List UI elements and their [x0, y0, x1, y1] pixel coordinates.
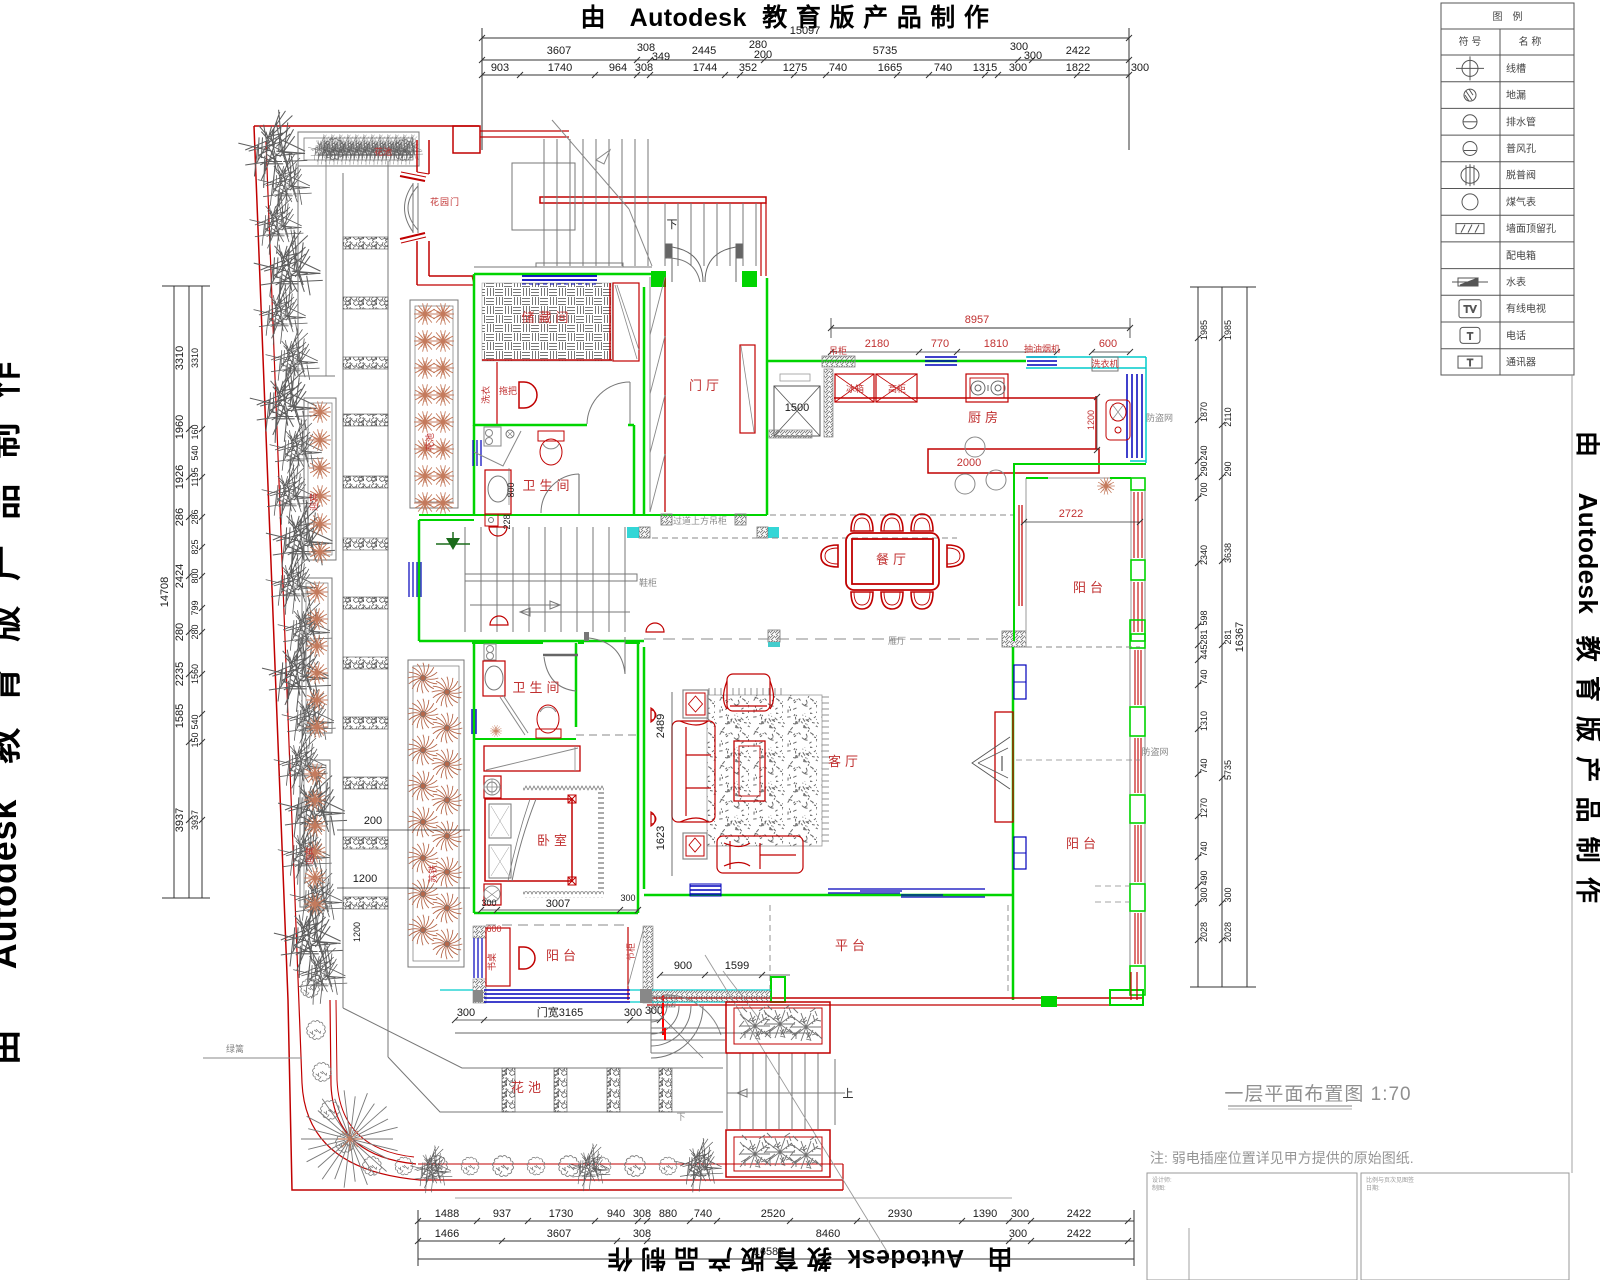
svg-text:1960: 1960 [174, 415, 186, 439]
svg-text:3607: 3607 [547, 1228, 571, 1240]
svg-text:2422: 2422 [1067, 1228, 1091, 1240]
svg-text:2110: 2110 [1223, 407, 1233, 426]
svg-text:下: 下 [667, 219, 678, 231]
svg-text:2028: 2028 [1199, 922, 1209, 942]
svg-text:花池: 花池 [511, 1080, 545, 1095]
svg-text:940: 940 [607, 1208, 625, 1220]
svg-text:线槽: 线槽 [1506, 62, 1526, 75]
svg-text:阳台: 阳台 [546, 948, 580, 963]
svg-text:1200: 1200 [353, 873, 377, 885]
svg-text:普风孔: 普风孔 [1506, 142, 1536, 155]
svg-text:308: 308 [635, 62, 653, 74]
svg-text:1822: 1822 [1066, 62, 1090, 74]
svg-text:300: 300 [1011, 1208, 1029, 1220]
svg-text:740: 740 [934, 62, 952, 74]
svg-text:1730: 1730 [549, 1208, 573, 1220]
svg-text:3607: 3607 [547, 45, 571, 57]
svg-text:349: 349 [652, 51, 670, 63]
svg-text:迎宾: 迎宾 [308, 493, 319, 511]
svg-text:200: 200 [754, 49, 772, 61]
svg-text:比例与页次见图签: 比例与页次见图签 [1366, 1176, 1414, 1184]
svg-text:阳台: 阳台 [1066, 836, 1100, 851]
svg-text:300: 300 [457, 1007, 475, 1019]
svg-text:14708: 14708 [159, 577, 171, 608]
svg-text:门厅: 门厅 [689, 378, 723, 393]
svg-text:名 称: 名 称 [1519, 35, 1542, 48]
svg-text:1500: 1500 [785, 402, 809, 414]
svg-text:880: 880 [659, 1208, 677, 1220]
svg-text:2930: 2930 [888, 1208, 912, 1220]
svg-text:200: 200 [364, 815, 382, 827]
svg-text:餐厅: 餐厅 [876, 552, 910, 567]
svg-text:280: 280 [190, 624, 200, 639]
svg-text:3937: 3937 [190, 810, 200, 830]
svg-text:1488: 1488 [435, 1208, 459, 1220]
svg-text:16585: 16585 [754, 1246, 785, 1258]
svg-text:1560: 1560 [190, 664, 200, 684]
svg-text:825: 825 [190, 539, 200, 554]
svg-text:3310: 3310 [174, 346, 186, 370]
svg-text:节柜: 节柜 [625, 943, 636, 961]
svg-text:冰箱: 冰箱 [846, 383, 864, 394]
svg-text:1466: 1466 [435, 1228, 459, 1240]
svg-text:由 Autodesk 教育版产品制作: 由 Autodesk 教育版产品制作 [0, 337, 24, 1065]
svg-text:1985: 1985 [1199, 320, 1209, 340]
svg-text:平台: 平台 [835, 938, 869, 953]
svg-text:280: 280 [174, 623, 186, 641]
svg-text:3937: 3937 [174, 808, 186, 832]
svg-text:注: 弱电插座位置详见甲方提供的原始图纸.: 注: 弱电插座位置详见甲方提供的原始图纸. [1150, 1150, 1414, 1166]
svg-text:2722: 2722 [1059, 508, 1083, 520]
svg-text:地漏: 地漏 [1506, 89, 1526, 102]
svg-text:740: 740 [694, 1208, 712, 1220]
svg-text:308: 308 [633, 1208, 651, 1220]
svg-text:2424: 2424 [174, 564, 186, 588]
svg-text:3310: 3310 [190, 348, 200, 368]
svg-text:防盗网: 防盗网 [1146, 412, 1173, 423]
svg-text:286: 286 [174, 508, 186, 526]
svg-text:1985: 1985 [1223, 320, 1233, 340]
svg-text:雁厅: 雁厅 [888, 636, 906, 646]
svg-text:墙面顶留孔: 墙面顶留孔 [1506, 222, 1556, 235]
svg-text:800: 800 [190, 568, 200, 583]
svg-text:160: 160 [190, 424, 200, 439]
svg-text:800: 800 [506, 482, 516, 497]
svg-text:1200: 1200 [352, 922, 362, 942]
svg-text:拖把: 拖把 [499, 385, 517, 396]
svg-text:300: 300 [620, 893, 635, 903]
svg-text:308: 308 [633, 1228, 651, 1240]
svg-text:有线电视: 有线电视 [1506, 302, 1546, 315]
svg-text:一层平面布置图 1:70: 一层平面布置图 1:70 [1224, 1083, 1411, 1105]
svg-text:1275: 1275 [783, 62, 807, 74]
svg-text:洗衣: 洗衣 [480, 386, 491, 404]
svg-text:300: 300 [1009, 62, 1027, 74]
svg-text:2422: 2422 [1066, 45, 1090, 57]
svg-text:2520: 2520 [761, 1208, 785, 1220]
svg-text:过道上方吊柜: 过道上方吊柜 [673, 515, 727, 526]
svg-text:T: T [1467, 331, 1473, 342]
svg-text:2340: 2340 [1199, 545, 1209, 565]
svg-text:1200: 1200 [1086, 410, 1096, 430]
svg-text:300: 300 [481, 898, 496, 908]
svg-text:2000: 2000 [957, 457, 981, 469]
svg-text:15097: 15097 [790, 25, 821, 37]
svg-text:228: 228 [502, 514, 512, 529]
svg-text:964: 964 [609, 62, 627, 74]
svg-text:迎宾: 迎宾 [304, 847, 315, 865]
svg-text:1390: 1390 [973, 1208, 997, 1220]
svg-text:903: 903 [491, 62, 509, 74]
svg-text:1195: 1195 [190, 467, 200, 486]
svg-text:吊柜: 吊柜 [829, 345, 847, 356]
svg-text:卫生间: 卫生间 [512, 680, 563, 695]
svg-text:2028: 2028 [1223, 922, 1233, 942]
svg-text:防盗网: 防盗网 [1141, 746, 1168, 757]
svg-text:高柜: 高柜 [888, 383, 906, 394]
svg-text:鞋柜: 鞋柜 [639, 577, 657, 588]
svg-text:1270: 1270 [1199, 798, 1209, 818]
svg-text:900: 900 [674, 960, 692, 972]
svg-text:600: 600 [1099, 338, 1117, 350]
svg-text:花池: 花池 [374, 146, 392, 157]
svg-text:2180: 2180 [865, 338, 889, 350]
svg-text:日期:: 日期: [1366, 1184, 1380, 1192]
svg-text:洗衣机: 洗衣机 [1091, 358, 1118, 369]
svg-text:2235: 2235 [174, 662, 186, 686]
svg-text:阳台: 阳台 [1073, 580, 1107, 595]
svg-text:水表: 水表 [1506, 276, 1526, 289]
svg-text:1623: 1623 [655, 826, 667, 850]
svg-text:540: 540 [190, 445, 200, 460]
svg-text:符 号: 符 号 [1459, 35, 1482, 48]
svg-text:厨房: 厨房 [968, 410, 1002, 425]
svg-text:1740: 1740 [548, 62, 572, 74]
svg-text:客厅: 客厅 [828, 754, 862, 769]
svg-text:5735: 5735 [873, 45, 897, 57]
svg-text:门宽3165: 门宽3165 [537, 1005, 583, 1019]
svg-text:1315: 1315 [973, 62, 997, 74]
svg-text:T: T [1467, 358, 1473, 369]
svg-text:150: 150 [190, 732, 200, 747]
svg-text:2489: 2489 [655, 714, 667, 738]
svg-text:16367: 16367 [1234, 622, 1246, 653]
svg-text:1665: 1665 [878, 62, 902, 74]
svg-text:1310: 1310 [1199, 711, 1209, 731]
svg-text:绿篱: 绿篱 [226, 1043, 244, 1054]
svg-text:300: 300 [1131, 62, 1149, 74]
svg-text:300: 300 [1024, 50, 1042, 62]
svg-text:下: 下 [676, 1112, 685, 1122]
svg-text:300: 300 [1009, 1228, 1027, 1240]
svg-text:卧室: 卧室 [537, 833, 571, 848]
svg-text:上: 上 [843, 1087, 854, 1100]
svg-text:抽油烟机: 抽油烟机 [1024, 343, 1060, 354]
svg-text:1744: 1744 [693, 62, 717, 74]
svg-text:600: 600 [486, 924, 501, 934]
svg-text:排水管: 排水管 [1506, 115, 1536, 128]
svg-text:1599: 1599 [725, 960, 749, 972]
svg-text:3638: 3638 [1223, 543, 1233, 563]
svg-text:3007: 3007 [546, 898, 570, 910]
svg-text:制图:: 制图: [1152, 1184, 1166, 1192]
svg-text:352: 352 [739, 62, 757, 74]
svg-text:2422: 2422 [1067, 1208, 1091, 1220]
svg-text:由 Autodesk 教育版产品制作: 由 Autodesk 教育版产品制作 [1573, 431, 1600, 917]
svg-text:286: 286 [190, 509, 200, 524]
svg-text:770: 770 [931, 338, 949, 350]
svg-text:799: 799 [190, 600, 200, 615]
svg-text:540: 540 [190, 714, 200, 729]
svg-text:书桌: 书桌 [486, 953, 497, 971]
svg-text:脱普阀: 脱普阀 [1506, 169, 1536, 182]
svg-text:配电箱: 配电箱 [1506, 249, 1536, 262]
svg-text:设计师:: 设计师: [1152, 1176, 1172, 1184]
svg-text:通讯器: 通讯器 [1506, 357, 1536, 369]
svg-text:8957: 8957 [965, 314, 989, 326]
svg-text:937: 937 [493, 1208, 511, 1220]
svg-text:740: 740 [829, 62, 847, 74]
svg-text:5735: 5735 [1223, 760, 1233, 780]
svg-text:2445: 2445 [692, 45, 716, 57]
svg-text:苏铁: 苏铁 [427, 865, 438, 883]
svg-text:储藏间: 储藏间 [521, 310, 572, 325]
svg-text:花园门: 花园门 [430, 196, 460, 207]
svg-text:8460: 8460 [816, 1228, 840, 1240]
svg-text:电话: 电话 [1506, 329, 1526, 342]
svg-text:1585: 1585 [174, 704, 186, 728]
svg-text:1810: 1810 [984, 338, 1008, 350]
svg-text:花池: 花池 [424, 433, 435, 451]
svg-text:TV: TV [1464, 305, 1477, 316]
svg-text:1870: 1870 [1199, 402, 1209, 422]
svg-text:煤气表: 煤气表 [1506, 195, 1536, 208]
svg-text:1926: 1926 [174, 465, 186, 489]
